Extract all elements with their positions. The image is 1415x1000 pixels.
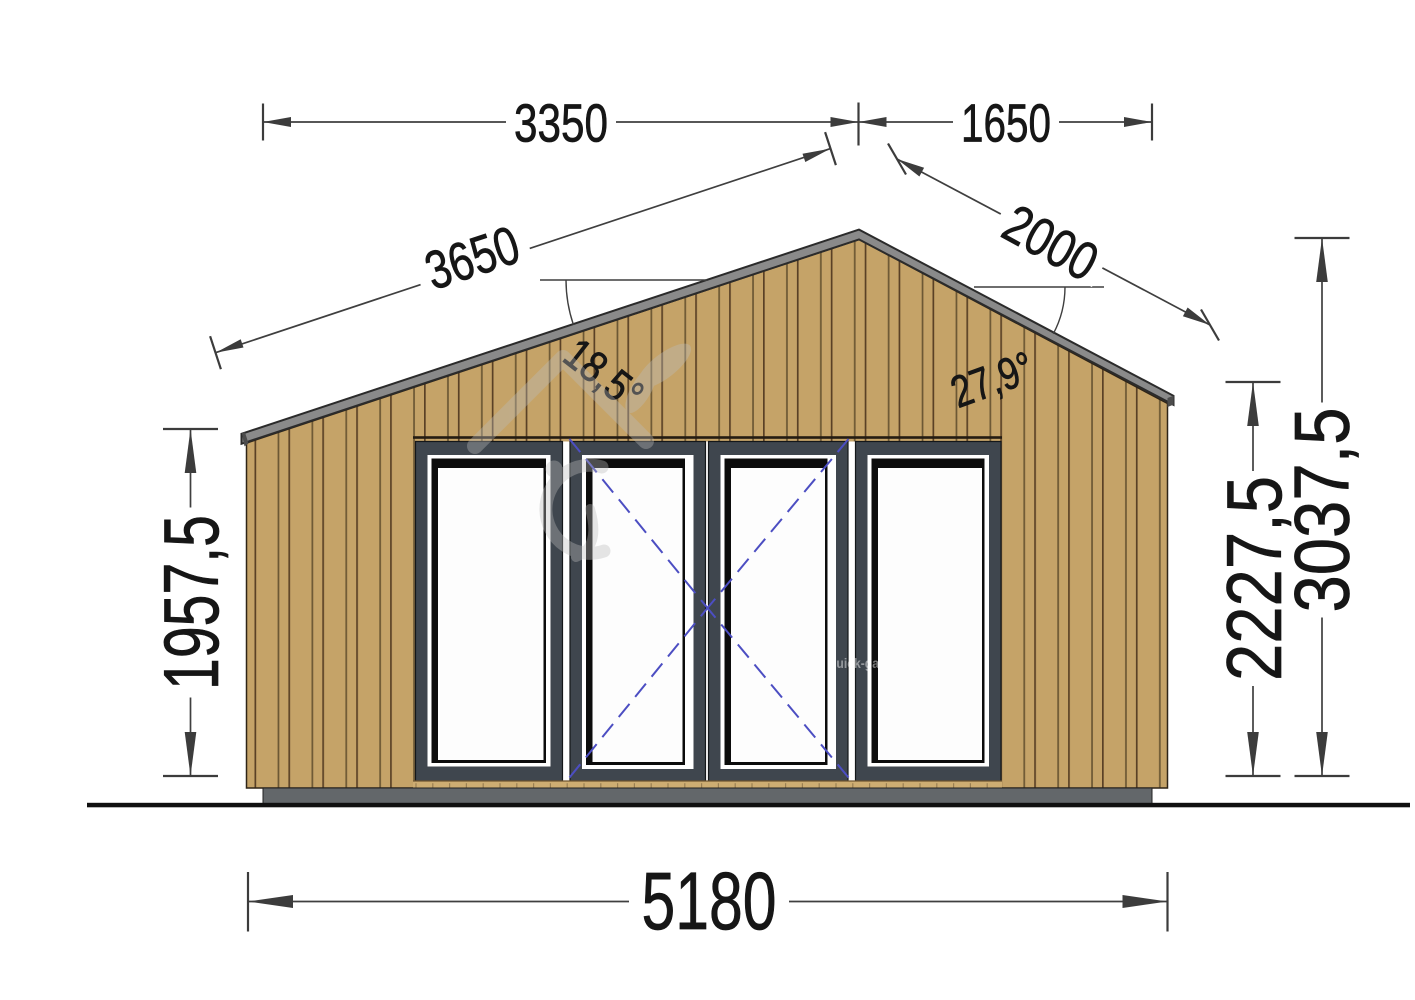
svg-text:1650: 1650 <box>961 93 1051 153</box>
svg-text:quick-ga: quick-ga <box>829 655 879 671</box>
svg-text:3350: 3350 <box>514 93 608 153</box>
svg-text:1957,5: 1957,5 <box>147 515 235 690</box>
svg-text:3037,5: 3037,5 <box>1278 408 1366 613</box>
svg-text:5180: 5180 <box>642 856 777 947</box>
svg-text:3650: 3650 <box>418 215 527 302</box>
